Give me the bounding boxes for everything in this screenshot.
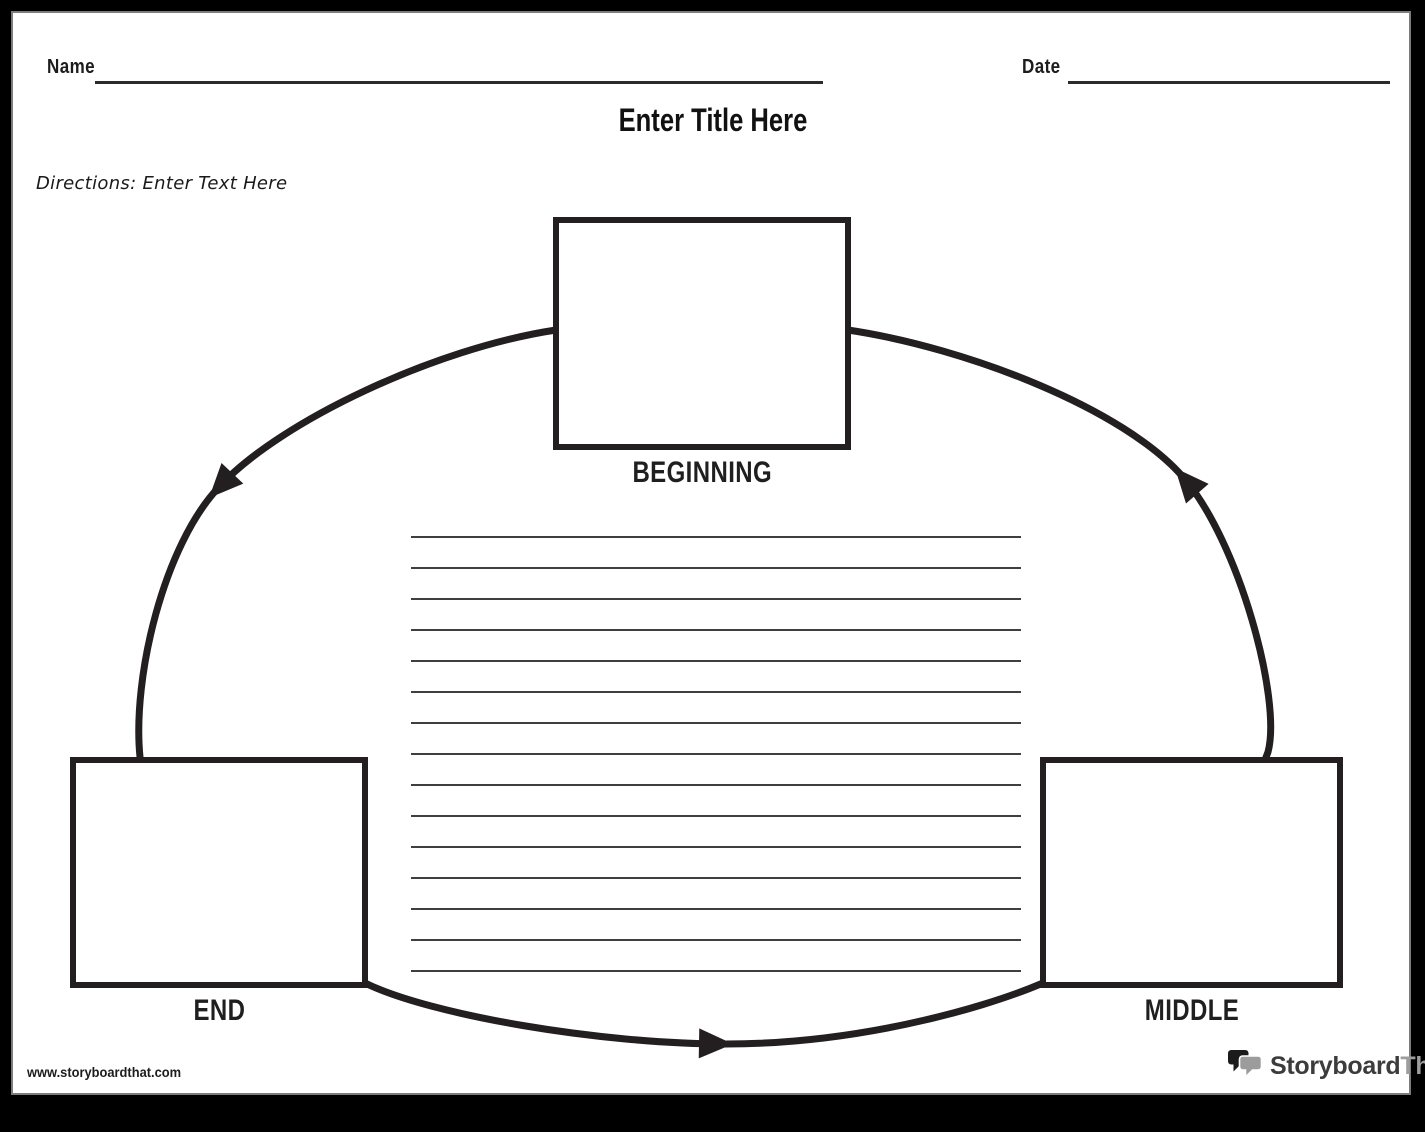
website-url: www.storyboardthat.com [27,1064,195,1080]
writing-line [411,846,1021,848]
writing-line [411,784,1021,786]
writing-line [411,877,1021,879]
writing-lines-area[interactable] [411,536,1021,976]
beginning-label: BEGINNING [556,456,848,490]
writing-line [411,815,1021,817]
middle-label: MIDDLE [1043,994,1340,1028]
middle-label-text: MIDDLE [1144,994,1238,1028]
writing-line [411,691,1021,693]
text-layer: Name Date Enter Title Here Directions: E… [0,0,1425,1132]
page-title: Enter Title Here [0,102,1425,139]
end-label-text: END [193,994,245,1028]
beginning-label-text: BEGINNING [632,456,772,490]
date-field-line[interactable] [1068,81,1390,84]
end-label: END [73,994,365,1028]
writing-line [411,629,1021,631]
logo-text-secondary: That [1400,1052,1425,1080]
website-url-text: www.storyboardthat.com [27,1064,181,1080]
writing-line [411,722,1021,724]
writing-line [411,598,1021,600]
logo-text: StoryboardThat [1270,1052,1425,1081]
writing-line [411,970,1021,972]
date-label: Date [1022,56,1067,79]
directions-text: Directions: Enter Text Here [36,173,287,194]
writing-line [411,567,1021,569]
name-field-line[interactable] [95,81,823,84]
name-label: Name [47,56,103,79]
storyboardthat-logo: StoryboardThat [1228,1049,1425,1083]
writing-line [411,908,1021,910]
writing-line [411,536,1021,538]
page-title-text: Enter Title Here [618,102,807,139]
writing-line [411,660,1021,662]
speech-bubbles-icon [1228,1049,1265,1083]
worksheet-canvas: Name Date Enter Title Here Directions: E… [0,0,1425,1132]
date-label-text: Date [1022,56,1061,79]
logo-text-primary: Storyboard [1270,1052,1400,1080]
writing-line [411,939,1021,941]
name-label-text: Name [47,56,95,79]
writing-line [411,753,1021,755]
